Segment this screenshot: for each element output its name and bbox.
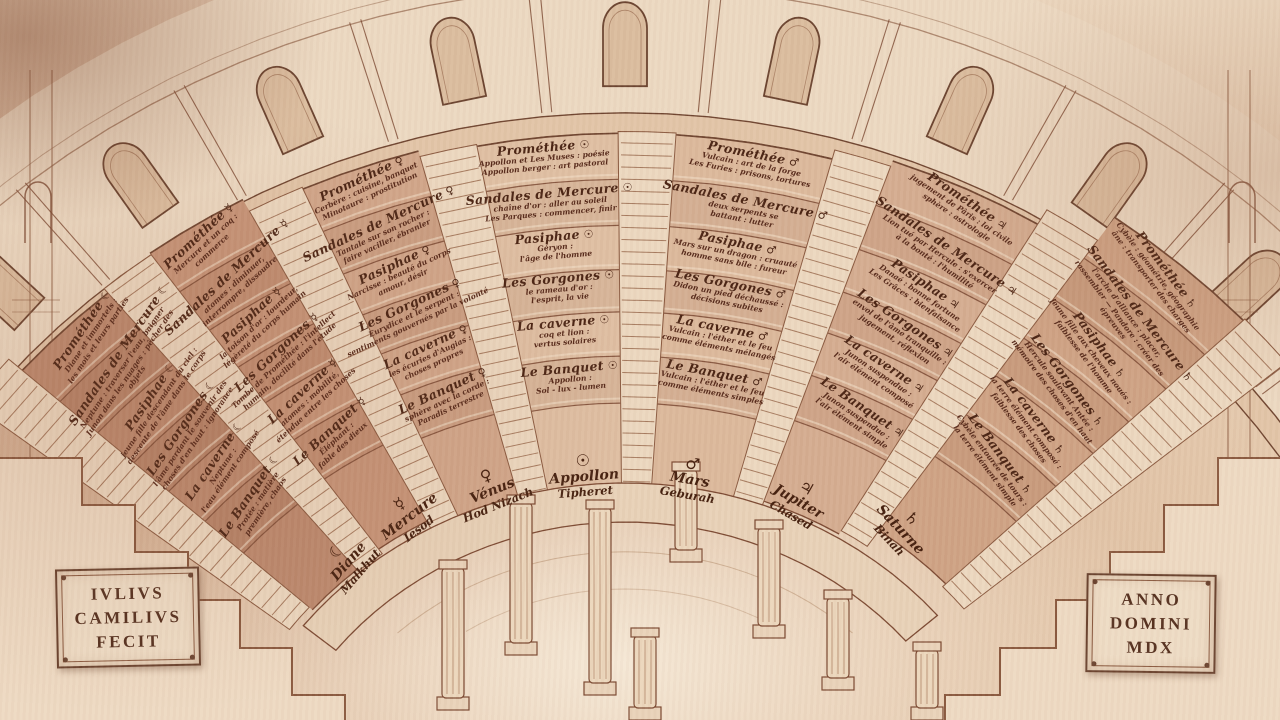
grade-title: Les Gorgones♂	[643, 260, 818, 308]
tier-lune-sandales-de-mercure: Sandales de Mercure☾Neptune : traverser …	[65, 295, 183, 442]
grade-title: Les Gorgones♃	[833, 271, 978, 376]
grade-description: la terre élément simple	[936, 404, 1033, 529]
grade-description: étendue entre les choses	[253, 346, 380, 465]
grade-description: Mercure et un coq :	[143, 185, 270, 304]
grade-description: légèreté du corps humain	[202, 270, 329, 389]
appollon-symbol-icon: ☉	[583, 228, 594, 242]
grade-description: deux serpents se	[656, 190, 829, 232]
grade-description: battant : lutter	[655, 198, 828, 240]
grade-description: Hercule soulevant Antée :	[1010, 324, 1107, 449]
tier-saturne-le-banquet: Le Banquet♄Cybèle entourée de tours :la …	[936, 390, 1052, 529]
grade-description: envol de l'âme tranquille :	[828, 283, 970, 382]
tier-jupiter-les-gorgones: Les Gorgones♃envol de l'âme tranquille :…	[823, 271, 978, 390]
tier-jupiter-la-caverne: La caverne♃Junon suspendue :l'air élémen…	[802, 312, 957, 431]
grade-description: Mars sur un dragon : cruauté	[649, 233, 822, 275]
tier-venus-promethee: Prométhée♀Cerbère : cuisine, banquetMino…	[279, 134, 451, 237]
planet-base-mercure: ☿MercureIesod	[368, 477, 449, 554]
tier-mercure-la-caverne: La caverne☿atomes : mobilité,étendue ent…	[237, 328, 380, 464]
tier-saturne-pasiphae: Pasiphae♄jeune fille aux cheveux noués :…	[1035, 280, 1151, 419]
jupiter-symbol-icon: ♃	[994, 217, 1010, 233]
grade-description: Sol - lux - lumen	[478, 377, 663, 402]
grade-description: chaîne d'or : aller au soleil	[458, 193, 643, 218]
date-plaque-line-1: ANNO	[1101, 587, 1201, 612]
tier-mars-la-caverne: La caverne♂Vulcain : l'éther et le feuco…	[632, 303, 810, 368]
jupiter-symbol-icon: ♃	[1004, 282, 1020, 298]
maker-plaque-frame: IVLIVS CAMILIVS FECIT	[61, 573, 195, 663]
mercure-symbol-icon: ☿	[223, 201, 237, 215]
grade-title: Pasiphae☾	[101, 330, 197, 463]
jupiter-symbol-icon: ♃	[911, 380, 927, 396]
grade-description: Eurydice et le serpent :	[334, 274, 496, 356]
venus-symbol-icon: ♀	[476, 365, 489, 380]
grade-description: comme éléments simples	[624, 372, 797, 414]
plaque-corner-dot	[188, 573, 193, 578]
grade-description: Neptune :	[178, 403, 269, 532]
grade-description: Danaé : bonne fortune	[848, 244, 990, 343]
planet-base-appollon: ☉AppollonTipheret	[547, 451, 620, 502]
grade-description: rassembler — Pandore : créer des épreuve…	[1063, 256, 1167, 386]
mars-symbol-icon: ♂	[765, 242, 777, 257]
grade-description: interrompre, dissoudre	[177, 232, 304, 351]
tier-mercure-les-gorgones: Les Gorgones☿Tombe de Prométhée : l'inte…	[211, 290, 354, 426]
saturne-symbol-icon: ♄	[1183, 295, 1200, 311]
grade-description: amour, désir	[322, 242, 484, 324]
grade-title: Sandales de Mercure☾	[65, 295, 161, 428]
mars-symbol-icon: ♂	[757, 329, 769, 344]
grade-description: fable des dieux	[280, 386, 407, 505]
grade-description: jugement, réflexion	[823, 291, 965, 390]
grade-description: Neptune : traverser l'eau, baigner	[78, 303, 169, 432]
grade-title: Les Gorgones☾	[133, 361, 229, 494]
grade-title: La caverne♄	[984, 352, 1086, 481]
mars-symbol-icon: ♂	[816, 208, 828, 223]
lune-symbol-icon: ☾	[266, 451, 282, 467]
grade-title: Prométhée♀	[279, 134, 444, 222]
saturne-symbol-icon: ♄	[1051, 442, 1068, 458]
mercure-symbol-icon: ☿	[326, 356, 340, 370]
tier-jupiter-promethee: Prométhée♃jugement de Pâris : loi civile…	[886, 149, 1041, 268]
tier-mercure-sandales-de-mercure: Sandales de Mercure☿atomes : diminuer,in…	[161, 215, 304, 351]
mercure-symbol-icon: ☿	[270, 285, 284, 299]
grade-title: Sandales de Mercure♄	[1084, 242, 1186, 371]
grade-description: Narcisse : beauté du corps	[318, 234, 480, 316]
mars-symbol-icon: ♂	[751, 375, 763, 390]
grade-description: l'âge de l'homme	[463, 245, 648, 270]
grade-description: Les Grâces : bienfaisance	[843, 252, 985, 351]
saturne-symbol-icon: ♄	[1090, 413, 1107, 429]
tier-mars-sandales-de-mercure: Sandales de Mercure♂deux serpents sebatt…	[655, 175, 833, 240]
grade-title: Sandales de Mercure♀	[296, 179, 461, 267]
grade-description: Vulcain : l'éther et le feu	[625, 363, 798, 405]
tier-saturne-sandales-de-mercure: Sandales de Mercure♄l'arche d'alliance :…	[1063, 242, 1186, 387]
tier-venus-la-caverne: La caverne♀les écuries d'Augias :choses …	[343, 303, 515, 406]
grade-description: faiblesse des choses	[970, 366, 1067, 491]
date-plaque: ANNO DOMINI MDX	[1085, 573, 1216, 674]
grade-description: faire vaciller, ébranler	[306, 200, 468, 282]
grade-description: Vulcain : l'éther et le feu	[633, 318, 806, 360]
grade-title: Le Banquet☉	[476, 353, 662, 384]
tier-jupiter-sandales-de-mercure: Sandales de Mercure♃Lion tué par Hercule…	[864, 192, 1019, 311]
grade-title: Les Gorgones☉	[466, 263, 652, 294]
venus-symbol-icon: ♀	[444, 183, 457, 198]
grade-title: Le Banquet♀	[360, 346, 525, 434]
grade-description: Géryon :	[462, 236, 647, 261]
grade-description: Tombe de Prométhée : l'intellect	[221, 301, 348, 420]
tier-appollon-promethee: Prométhée☉Appollon et Les Muses : poésie…	[451, 131, 638, 179]
tier-venus-le-banquet: Le Banquet♀sphère avec la corde :Paradis…	[360, 346, 532, 449]
grade-description: vertus solaires	[473, 331, 658, 356]
plaque-corner-dot	[1206, 581, 1211, 586]
grade-title: La caverne♃	[812, 312, 957, 417]
grade-description: jeune fille descendant du ciel :	[114, 338, 205, 467]
lune-symbol-icon: ☾	[230, 419, 246, 435]
planet-base-jupiter: ♃JupiterChased	[763, 467, 833, 534]
grade-title: Prométhée♃	[896, 149, 1041, 254]
grade-title: Prométhée♂	[666, 129, 841, 177]
grade-description: Cybèle : géométrie, géographie	[1109, 214, 1206, 339]
grade-description: Diane et immortels :	[46, 271, 137, 400]
mercure-symbol-icon: ☿	[277, 217, 291, 231]
grade-title: Le Banquet♄	[949, 390, 1051, 519]
grade-title: Le Banquet♃	[790, 354, 935, 459]
grade-title: Pasiphae☉	[461, 221, 647, 252]
grade-description: descente de l'âme dans le corps	[121, 343, 212, 472]
grade-title: Les Gorgones☿	[211, 290, 342, 414]
grade-description: Appollon berger : art pastoral	[453, 155, 638, 180]
grade-title: Sandales de Mercure☿	[161, 215, 292, 339]
plaque-corner-dot	[61, 575, 66, 580]
lune-symbol-icon: ☾	[161, 360, 177, 376]
tier-mercure-promethee: Prométhée☿Mercure et un coq :commerce	[133, 174, 276, 310]
grade-description: Junon suspendue :	[785, 366, 927, 465]
tier-appollon-les-gorgones: Les Gorgones☉le rameau d'or :l'esprit, l…	[466, 263, 653, 311]
grade-title: Pasiphae♄	[1049, 280, 1151, 409]
grade-description: atomes : diminuer,	[171, 226, 298, 345]
grade-title: La caverne☾	[166, 394, 262, 527]
appollon-symbol-icon: ☉	[622, 181, 633, 195]
grade-title: Pasiphae☿	[186, 253, 317, 377]
grade-description: commerce	[149, 191, 276, 310]
grade-description: âne : transporter des charges	[1102, 220, 1199, 345]
grade-description: sentiments gouvernés par la volonté	[337, 282, 499, 364]
grade-description: la terre élément composé :	[977, 361, 1074, 486]
grade-description: le rameau d'or :	[467, 278, 652, 303]
tier-mercure-pasiphae: Pasiphae☿la toison d'or : lourdeur,légèr…	[186, 253, 329, 389]
grade-title: Sandales de Mercure☉	[456, 178, 642, 209]
appollon-symbol-icon: ☉	[607, 359, 618, 373]
grade-description: décisions subites	[640, 283, 813, 325]
grade-title: La caverne☿	[237, 328, 368, 452]
grade-description: Didon un pied déchaussé :	[641, 274, 814, 316]
grade-description: atomes : mobilité,	[247, 339, 374, 458]
appollon-symbol-icon: ☉	[604, 268, 615, 282]
grade-title: Prométhée☾	[34, 262, 130, 395]
grade-description: homme sans bile : fureur	[647, 241, 820, 283]
date-plaque-line-3: MDX	[1101, 635, 1201, 660]
venus-symbol-icon: ♀	[393, 154, 406, 169]
grade-title: Sandales de Mercure♃	[873, 192, 1018, 297]
grade-title: Prométhée♄	[1116, 205, 1218, 334]
grade-title: Pasiphae♃	[853, 232, 998, 337]
plaque-corner-dot	[1091, 662, 1096, 667]
grade-description: Vulcain : art de la forge	[665, 144, 838, 186]
tier-saturne-promethee: Prométhée♄Cybèle : géométrie, géographie…	[1102, 205, 1218, 344]
memory-theatre-drawing: Prométhée☾Diane et immortels :les mois e…	[0, 0, 1280, 720]
grade-description: première, chaos	[220, 442, 311, 571]
maker-plaque: IVLIVS CAMILIVS FECIT	[55, 567, 201, 669]
grade-title: La caverne♂	[635, 303, 810, 351]
grade-description: sphère : astrologie	[886, 168, 1028, 267]
appollon-symbol-icon: ☉	[580, 137, 591, 151]
grade-description: l'esprit, la vie	[468, 287, 653, 312]
grade-title: Les Gorgones♀	[327, 261, 492, 349]
grade-description: humain, docilité dans l'étude	[227, 307, 354, 426]
lune-symbol-icon: ☾	[155, 281, 171, 297]
grade-description: Appollon :	[477, 368, 662, 393]
tier-saturne-les-gorgones: Les Gorgones♄Hercule soulevant Antée :mé…	[1003, 315, 1119, 454]
tier-mars-les-gorgones: Les Gorgones♂Didon un pied déchaussé :dé…	[640, 260, 818, 325]
grade-description: choses d'en haut : ignorance	[153, 374, 244, 503]
plaque-corner-dot	[63, 658, 68, 663]
grade-description: Éléphant :	[274, 380, 401, 499]
mercure-symbol-icon: ☿	[355, 394, 369, 408]
tier-lune-promethee: Prométhée☾Diane et immortels :les mois e…	[34, 262, 145, 404]
grade-title: Le Banquet☿	[264, 369, 395, 493]
plaque-corner-dot	[190, 655, 195, 660]
grade-description: Les Parques : commencer, finir	[458, 202, 643, 227]
tier-mars-pasiphae: Pasiphae♂Mars sur un dragon : cruautéhom…	[647, 218, 825, 283]
tier-appollon-pasiphae: Pasiphae☉Géryon :l'âge de l'homme	[461, 221, 648, 269]
grade-description: Minotaure : prostitution	[289, 156, 451, 238]
tier-mars-promethee: Prométhée♂Vulcain : art de la forgeLes F…	[663, 129, 841, 194]
planet-base-mars: ♂MarsGeburah	[659, 452, 721, 507]
grade-title: Pasiphae♂	[650, 218, 825, 266]
jupiter-symbol-icon: ♃	[891, 423, 907, 439]
grade-description: Appollon et Les Muses : poésie	[452, 146, 637, 171]
grade-description: jeune fille aux cheveux noués :	[1042, 289, 1139, 414]
grade-title: Le Banquet☾	[200, 429, 296, 562]
plaque-corner-dot	[1093, 579, 1098, 584]
maker-plaque-line-1: IVLIVS	[70, 581, 184, 607]
grade-description: Lion tué par Hercule : s'exercer	[869, 204, 1011, 303]
tier-jupiter-pasiphae: Pasiphae♃Danaé : bonne fortuneLes Grâces…	[843, 232, 998, 351]
tier-appollon-sandales-de-mercure: Sandales de Mercure☉chaîne d'or : aller …	[456, 178, 643, 226]
appollon-symbol-icon: ☉	[599, 313, 610, 327]
grade-description: l'arche d'alliance : placer,	[1077, 251, 1174, 376]
venus-symbol-icon: ♀	[457, 322, 470, 337]
tier-venus-sandales-de-mercure: Sandales de Mercure♀Tantale sur son roch…	[296, 179, 468, 282]
planet-base-venus: ♀VénusHod Nizach	[449, 455, 536, 526]
grade-description: choses propres	[353, 324, 515, 406]
tier-venus-pasiphae: Pasiphae♀Narcisse : beauté du corpsamour…	[312, 220, 484, 323]
grade-title: La caverne♀	[343, 303, 508, 391]
grade-title: Le Banquet♂	[627, 349, 802, 397]
tier-appollon-le-banquet: Le Banquet☉Appollon :Sol - lux - lumen	[476, 353, 663, 401]
maker-plaque-line-3: FECIT	[71, 628, 185, 654]
grade-description: Junon dans les nuages : pêcher des objet…	[85, 308, 183, 442]
jupiter-symbol-icon: ♃	[946, 296, 962, 312]
tier-lune-la-caverne: La caverne☾Neptune :l'eau élément compos…	[166, 394, 277, 536]
grade-description: Cybèle entourée de tours :	[943, 399, 1040, 524]
tier-venus-les-gorgones: Les Gorgones♀Eurydice et le serpent :sen…	[327, 261, 499, 364]
saturne-symbol-icon: ♄	[1179, 369, 1196, 385]
jupiter-symbol-icon: ♃	[940, 345, 956, 361]
tier-jupiter-le-banquet: Le Banquet♃Junon suspendue :l'air élémen…	[781, 354, 936, 473]
grade-description: l'âme perdant le souvenir des	[145, 370, 236, 499]
grade-description: sphère avec la corde :	[366, 360, 528, 442]
grade-description: Paradis terrestre	[370, 368, 532, 450]
grade-description: la toison d'or : lourdeur,	[196, 264, 323, 383]
tier-lune-pasiphae: Pasiphae☾jeune fille descendant du ciel …	[101, 330, 212, 472]
grade-title: Prométhée☉	[451, 131, 637, 162]
grade-description: faiblesse de l'homme	[1035, 294, 1132, 419]
planet-base-diane: ☾DianeMalkhut	[312, 525, 383, 596]
grade-title: Pasiphae♀	[312, 220, 477, 308]
lune-symbol-icon: ☾	[98, 287, 114, 303]
grade-description: coq et lion :	[472, 322, 657, 347]
tier-mars-le-banquet: Le Banquet♂Vulcain : l'éther et le feuco…	[624, 349, 802, 414]
saturne-symbol-icon: ♄	[1111, 365, 1128, 381]
maker-plaque-line-2: CAMILIVS	[71, 605, 185, 631]
grade-title: Prométhée☿	[133, 174, 264, 298]
grade-description: l'eau élément composé	[186, 407, 277, 536]
grade-description: les mois et leurs parties	[53, 276, 144, 405]
mars-symbol-icon: ♂	[774, 287, 786, 302]
tier-saturne-la-caverne: La caverne♄la terre élément composé :fai…	[970, 352, 1086, 491]
grade-description: Les Furies : prisons, tortures	[663, 152, 836, 194]
tier-lune-les-gorgones: Les Gorgones☾l'âme perdant le souvenir d…	[133, 361, 244, 503]
grade-description: Junon suspendue :	[807, 324, 949, 423]
grade-description: Protée : matière	[213, 437, 304, 566]
tier-lune-le-banquet: Le Banquet☾Protée : matièrepremière, cha…	[200, 429, 311, 571]
venus-symbol-icon: ♀	[420, 243, 433, 258]
date-plaque-line-2: DOMINI	[1101, 611, 1201, 636]
mercure-symbol-icon: ☿	[307, 310, 321, 324]
tier-mercure-le-banquet: Le Banquet☿Éléphant :fable des dieux	[264, 369, 407, 505]
venus-symbol-icon: ♀	[450, 276, 463, 291]
mars-symbol-icon: ♂	[788, 155, 800, 170]
grade-title: Sandales de Mercure♂	[658, 175, 833, 223]
saturne-symbol-icon: ♄	[1018, 482, 1035, 498]
lune-symbol-icon: ☾	[202, 378, 218, 394]
grade-description: l'air élément composé	[802, 331, 944, 430]
date-plaque-frame: ANNO DOMINI MDX	[1091, 579, 1210, 668]
grade-description: jugement de Pâris : loi civile	[891, 161, 1033, 260]
tier-appollon-la-caverne: La caverne☉coq et lion :vertus solaires	[471, 307, 658, 355]
planet-base-saturne: ♄SaturneBinah	[863, 491, 939, 568]
grade-description: Tantale sur son rocher :	[302, 193, 464, 275]
grade-title: La caverne☉	[471, 307, 657, 338]
grade-description: mémoire des choses d'en haut	[1003, 329, 1100, 454]
grade-description: Cerbère : cuisine, banquet	[285, 148, 447, 230]
grade-description: comme éléments mélangés	[632, 327, 805, 369]
grade-title: Les Gorgones♄	[1017, 315, 1119, 444]
grade-description: à la bonté : l'humilité	[864, 212, 1006, 311]
grade-description: l'air élément simple	[781, 374, 923, 473]
plaque-corner-dot	[1204, 663, 1209, 668]
grade-description: les écuries d'Augias :	[350, 316, 512, 398]
